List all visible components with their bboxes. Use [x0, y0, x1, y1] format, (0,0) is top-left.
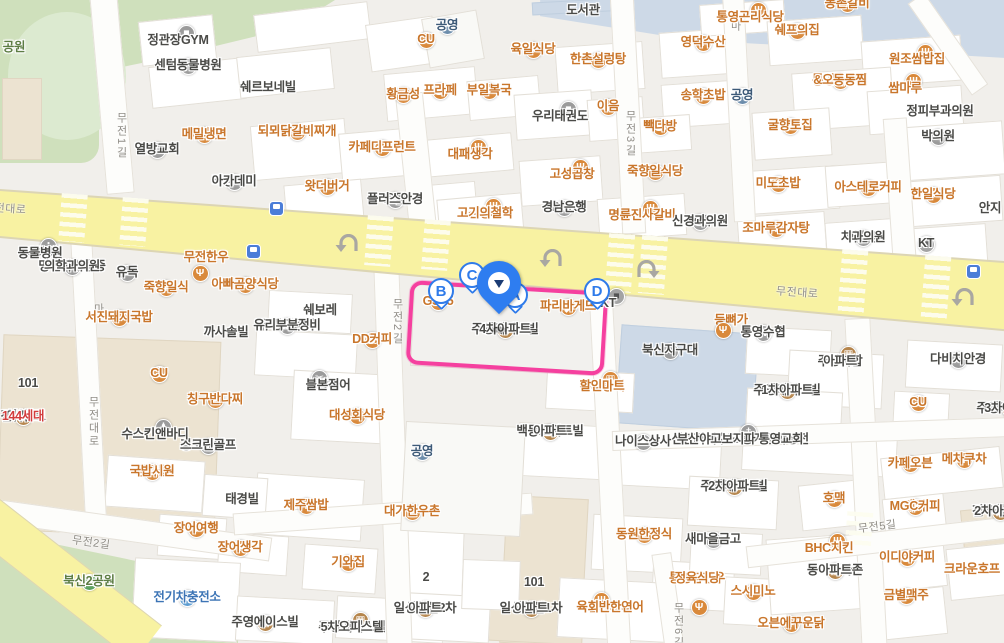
poi-label-line: 공영	[436, 18, 458, 33]
poi-label-line: DD커피	[352, 332, 392, 347]
poi-label-line: 부산야고보지파 통영교회	[677, 432, 803, 447]
poi-label-line: 신경과의원	[672, 214, 728, 229]
crosswalk	[364, 215, 394, 267]
poi-label-line: 죽향일식당	[627, 164, 683, 179]
street-label-무전대로: 무전대로	[775, 283, 818, 302]
poi-label-line: 금별맥주	[884, 588, 929, 603]
poi-label-line: 다비치안경	[930, 352, 986, 367]
poi-label-line: 공원	[3, 40, 25, 55]
poi-label-line: 까사솔빌	[204, 325, 249, 340]
poi-label-line: 전기차충전소	[153, 590, 220, 605]
poi-label-line: 파리바게뜨	[540, 299, 596, 314]
bus-stop-icon[interactable]	[966, 264, 981, 279]
poi-label-line: 정관장GYM	[147, 33, 208, 48]
poi-label-line: 아파트	[818, 563, 852, 578]
pin-inner-circle	[488, 272, 510, 294]
poi-label-line: 원조쌈밥집	[889, 52, 945, 67]
poi-label-line: 5차오피스텔	[321, 620, 384, 635]
poi-label-line: 주영에이스빌	[231, 615, 298, 630]
fork-icon: Ψ	[691, 599, 708, 616]
poi-label-line: 무전한우	[184, 250, 229, 265]
poi-label-line: CU	[417, 32, 434, 47]
poi-label-line: 대성회식당	[329, 408, 385, 423]
poi-label-line: CU	[150, 366, 167, 381]
poi-label-line: 경남은행	[542, 200, 587, 215]
poi-label-line: 101	[524, 575, 544, 590]
fork-icon: Ψ	[192, 265, 209, 282]
poi-label-line: 굴향토집	[768, 118, 813, 133]
poi-label-line: 프라페	[423, 83, 457, 98]
poi-label-line: 육회반한연어	[576, 600, 643, 615]
poi-label-line: KT	[918, 236, 934, 251]
poi-label-line: 이디야커피	[879, 550, 935, 565]
poi-label-line: 통영수협	[741, 325, 786, 340]
poi-label-line: 정피부과의원	[906, 104, 973, 119]
street-label-무전대로: 무전대로	[0, 199, 27, 218]
poi-label-line: 박의원	[921, 129, 955, 144]
street-label-무전1길: 무전1길	[113, 112, 129, 159]
poi-label-line: 본점	[317, 378, 339, 393]
poi-label-line: 아파트	[533, 424, 567, 439]
poi-label-line: 닭갈비	[280, 124, 314, 139]
poi-label-line: 황금성	[386, 87, 420, 102]
poi-label-line: 부일복국	[467, 83, 512, 98]
poi-label-line: 통영곤리식당	[716, 10, 783, 25]
poi-label-line: 빽다방	[643, 119, 677, 134]
poi-label-line: 쉐프의집	[775, 23, 820, 38]
poi-label-line: 북신2공원	[63, 574, 114, 589]
poi-label-line: 왓더버거	[305, 179, 350, 194]
pin-triangle-icon	[494, 280, 504, 288]
poi-label-line: 대패생각	[448, 147, 493, 162]
crosswalk	[421, 219, 451, 271]
poi-label-line: 카페오븐	[888, 456, 933, 471]
poi-label-line: &오동동찜	[813, 73, 867, 88]
parking-lot	[400, 421, 526, 537]
route-pin-B[interactable]: B	[428, 278, 454, 304]
poi-label-line: 쌈마루	[888, 81, 922, 96]
public-building-block	[615, 324, 760, 432]
poi-label-line: 호맥	[823, 491, 845, 506]
poi-label-line: 치과의원	[841, 230, 886, 245]
poi-label-line: 쉐르보네빌	[240, 80, 296, 95]
poi-label-line: 아스테로커피	[834, 180, 901, 195]
poi-label-line: 육일식당	[511, 42, 556, 57]
poi-label-line: BHC치킨	[805, 541, 854, 556]
poi-label-line: 서진돼지국밥	[85, 310, 152, 325]
poi-label-line: 101	[18, 376, 38, 391]
poi-label-line: 144세대	[2, 409, 44, 424]
bus-stop-icon[interactable]	[269, 201, 284, 216]
poi-label-line: 이음	[597, 99, 619, 114]
poi-label-line: 고기의철학	[457, 206, 513, 221]
street-label-무전대로: 무전대로	[85, 396, 101, 448]
crosswalk	[921, 255, 952, 319]
map-canvas[interactable]: 공원■정관장GYM∴센텀동물병원쉐르보네빌⌂CUP공영Ψ사리원메밀냉면†열방교회…	[0, 0, 1004, 643]
poi-label-line: 동촌갈비	[825, 0, 870, 11]
poi-label-line: 미도초밥	[756, 176, 801, 191]
poi-label-line: 아파트	[823, 354, 857, 369]
poi-label-line: 3차아파트	[984, 401, 1004, 416]
street-label-무전3길: 무전3길	[622, 110, 638, 157]
crosswalk	[58, 193, 88, 243]
poi-label-line: 쉐보레	[303, 303, 337, 318]
poi-label-line: 유리부분정비	[253, 318, 320, 333]
route-pin-D[interactable]: D	[584, 278, 610, 304]
poi-label-line: 송학초밥	[681, 88, 726, 103]
poi-label-line: 고성곱창	[550, 167, 595, 182]
pin-shadow	[491, 327, 507, 333]
poi-label-line: 2차아파트	[974, 504, 1004, 519]
poi-label-line: 대가한우촌	[384, 504, 440, 519]
poi-label-line: 칭구반다찌	[187, 392, 243, 407]
poi-label-line: 북신지구대	[642, 343, 698, 358]
poi-label-line: 장어여행	[174, 521, 219, 536]
poi-label-line: 크라운호프	[944, 562, 1000, 577]
poi-label-line: 명륜진사갈비	[608, 208, 675, 223]
poi-label-line: 아빠곰양식당	[211, 277, 278, 292]
poi-label-line: 새마을금고	[685, 532, 741, 547]
fork-icon: Ψ	[715, 322, 732, 339]
poi-label-line: 플러스안경	[367, 192, 423, 207]
poi-label-line: 영덕수산	[681, 35, 726, 50]
poi-label-line: 죽향일식	[144, 280, 189, 295]
poi-label-line: 태경빌	[225, 492, 259, 507]
poi-label-line: 공영	[731, 88, 753, 103]
poi-label-line: MGC커피	[890, 499, 941, 514]
poi-label-line: CU	[909, 395, 926, 410]
poi-label-line: 공영	[411, 444, 433, 459]
poi-label-line: 메밀냉면	[182, 127, 227, 142]
crosswalk	[605, 233, 635, 293]
poi-label-line: 아파트	[408, 601, 442, 616]
poi-label-line: 아파트	[514, 601, 548, 616]
poi-label-line: 한일식당	[911, 187, 956, 202]
poi-label-line: 메차쿠차	[942, 452, 987, 467]
poi-label-line: 도서관	[566, 3, 600, 18]
street-label-무전6길: 무전6길	[670, 602, 686, 643]
poi-label-line: 국밥시원	[130, 464, 175, 479]
poi-label-line: 스시미노	[731, 584, 776, 599]
poi-label-line: 2차아파트	[708, 479, 759, 494]
poi-label-line: 2	[423, 570, 430, 585]
poi-label-line: 아카데미	[212, 174, 257, 189]
poi-label-line: 센텀동물병원	[154, 58, 221, 73]
poi-label-line: 기와집	[331, 555, 365, 570]
poi-label-line: 안지	[979, 201, 1001, 216]
poi-label-line: 오븐에꾸운닭	[757, 616, 824, 631]
apartment-block	[2, 78, 42, 160]
poi-label-line: 동원한정식	[616, 527, 672, 542]
poi-label-line: 카페디프런트	[348, 140, 415, 155]
poi-label-line: 할인마트	[580, 379, 625, 394]
poi-label-line: 한촌설렁탕	[570, 52, 626, 67]
crosswalk	[119, 197, 149, 247]
poi-label-line: 장어생각	[218, 540, 263, 555]
poi-label-line: 제주쌈밥	[284, 498, 329, 513]
poi-label-line: 1차아파트	[761, 383, 812, 398]
crosswalk	[838, 249, 869, 313]
poi-label-line: 의학과의원	[44, 259, 100, 274]
poi-label-line: 우리태권도	[532, 109, 588, 124]
poi-label-line: 정육식당	[675, 571, 720, 586]
poi-label-line: 수스킨앤바디	[121, 427, 188, 442]
poi-label-line: 열방교회	[135, 142, 180, 157]
poi-label-line: 유독	[116, 265, 138, 280]
poi-label-line: 나이스상사	[615, 434, 671, 449]
poi-label-line: 조마루감자탕	[742, 221, 809, 236]
bus-stop-icon[interactable]	[246, 244, 261, 259]
